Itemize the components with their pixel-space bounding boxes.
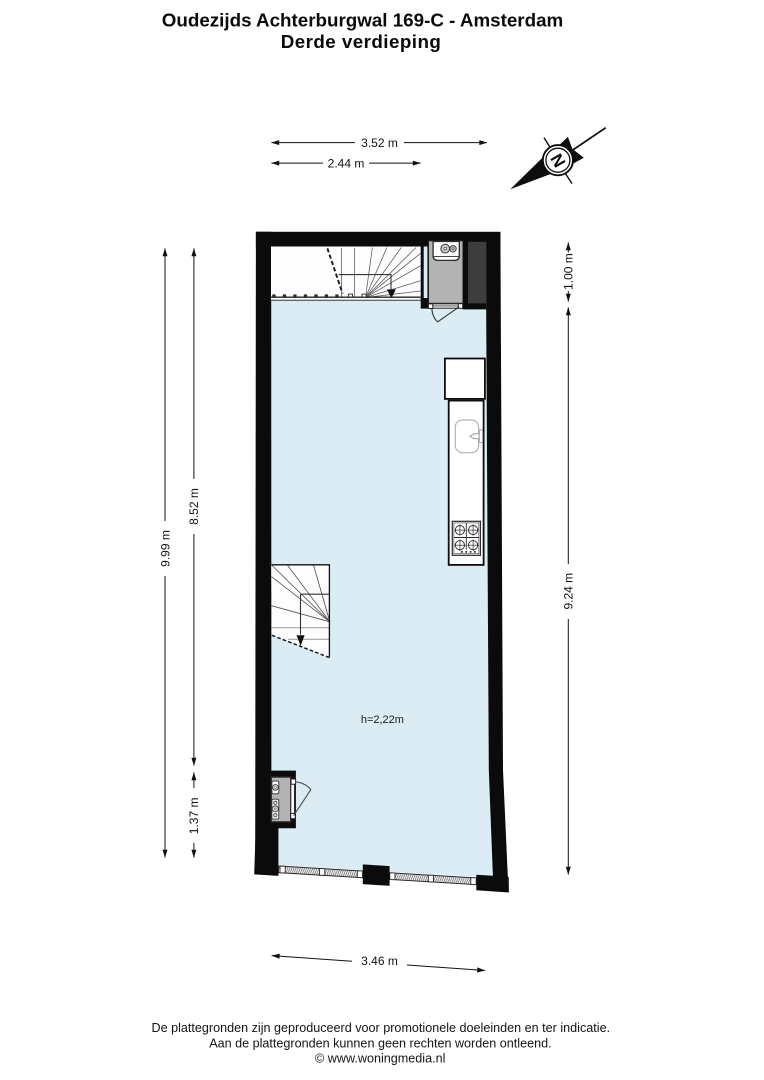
- svg-text:3.46 m: 3.46 m: [361, 954, 398, 968]
- svg-text:9.99 m: 9.99 m: [158, 530, 172, 567]
- svg-text:1.00 m: 1.00 m: [562, 253, 576, 290]
- svg-text:Oudezijds Achterburgwal 169-C: Oudezijds Achterburgwal 169-C - Amsterda…: [162, 9, 563, 30]
- svg-text:9.24 m: 9.24 m: [562, 573, 576, 610]
- svg-text:h=2,22m: h=2,22m: [361, 714, 404, 726]
- svg-text:Aan de plattegronden kunnen ge: Aan de plattegronden kunnen geen rechten…: [209, 1036, 551, 1050]
- svg-text:8.52 m: 8.52 m: [187, 488, 201, 525]
- svg-text:© www.woningmedia.nl: © www.woningmedia.nl: [315, 1052, 445, 1066]
- svg-text:3.52 m: 3.52 m: [361, 136, 398, 150]
- svg-text:1.37 m: 1.37 m: [187, 798, 201, 835]
- svg-text:De plattegronden zijn geproduc: De plattegronden zijn geproduceerd voor …: [152, 1021, 611, 1035]
- svg-text:Derde verdieping: Derde verdieping: [281, 31, 442, 52]
- svg-text:2.44 m: 2.44 m: [328, 156, 365, 170]
